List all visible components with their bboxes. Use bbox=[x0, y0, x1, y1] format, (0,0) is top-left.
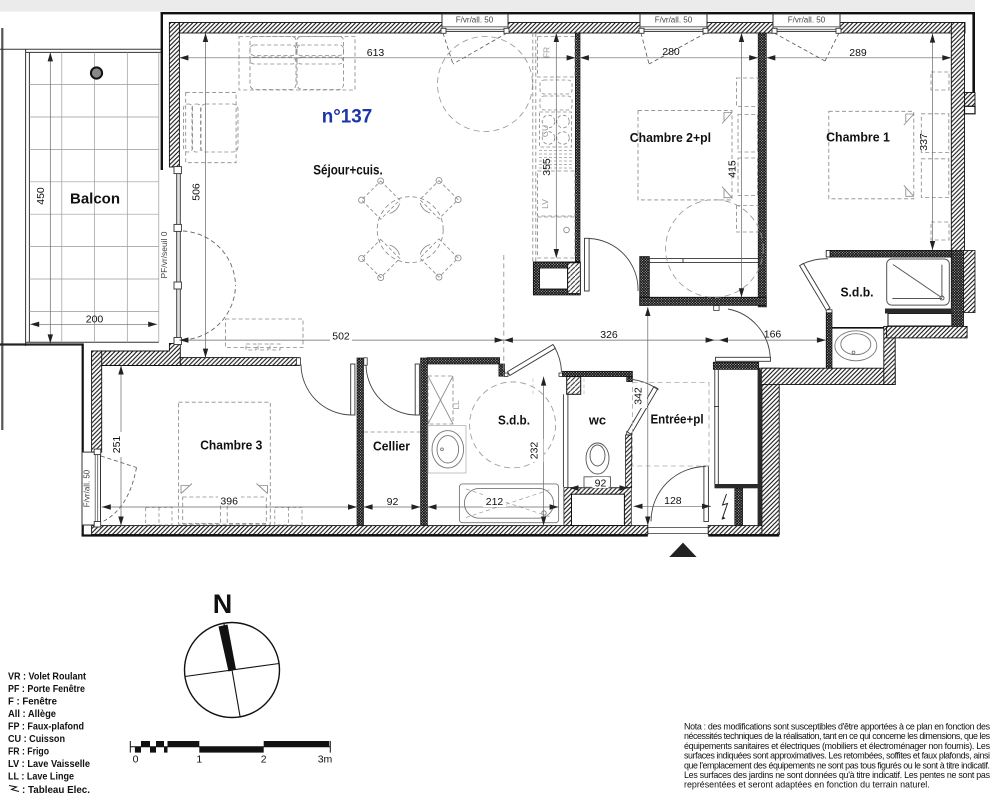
svg-text:LL : Lave Linge: LL : Lave Linge bbox=[8, 772, 74, 783]
svg-text:Cellier: Cellier bbox=[373, 438, 410, 453]
svg-text:FP : Faux-plafond: FP : Faux-plafond bbox=[8, 722, 84, 733]
svg-text:surfaces indiquées sont approx: surfaces indiquées sont approximatives. … bbox=[684, 751, 990, 761]
svg-text:Chambre 1: Chambre 1 bbox=[826, 130, 890, 145]
svg-text:128: 128 bbox=[664, 495, 682, 507]
svg-text:FR: FR bbox=[542, 47, 552, 58]
svg-text:415: 415 bbox=[727, 160, 739, 178]
svg-text:613: 613 bbox=[367, 47, 385, 59]
svg-text:PF : Porte Fenêtre: PF : Porte Fenêtre bbox=[8, 684, 85, 695]
svg-text:Chambre 3: Chambre 3 bbox=[200, 437, 262, 452]
svg-text:F : Fenêtre: F : Fenêtre bbox=[8, 697, 57, 708]
svg-text:506: 506 bbox=[191, 183, 203, 201]
svg-text:équipements sanitaires et élec: équipements sanitaires et électriques (m… bbox=[684, 741, 991, 751]
svg-text:que l'emplacement des équipeme: que l'emplacement des équipements ne son… bbox=[684, 760, 990, 770]
svg-text:F/vr/all. 50: F/vr/all. 50 bbox=[788, 15, 826, 24]
svg-text:F/vr/all. 50: F/vr/all. 50 bbox=[655, 15, 693, 24]
svg-text:CU : Cuisson: CU : Cuisson bbox=[8, 734, 65, 745]
svg-text:LV: LV bbox=[540, 199, 550, 209]
svg-text:Balcon: Balcon bbox=[70, 190, 120, 207]
svg-text:166: 166 bbox=[764, 329, 782, 341]
svg-text:N: N bbox=[213, 589, 233, 619]
svg-text:337: 337 bbox=[918, 133, 930, 151]
svg-text:Nota : des modifications sont: Nota : des modifications sont susceptibl… bbox=[684, 722, 991, 732]
svg-text:355: 355 bbox=[541, 158, 553, 176]
svg-text:Les surfaces des jardins ne so: Les surfaces des jardins ne sont données… bbox=[684, 770, 991, 780]
svg-text:CU: CU bbox=[540, 125, 550, 137]
svg-text:F/vr/all. 50: F/vr/all. 50 bbox=[83, 469, 92, 507]
svg-text:326: 326 bbox=[600, 329, 618, 341]
svg-text:200: 200 bbox=[86, 314, 104, 326]
svg-text:251: 251 bbox=[111, 436, 123, 454]
svg-text:S.d.b.: S.d.b. bbox=[498, 413, 530, 428]
svg-text:Entrée+pl: Entrée+pl bbox=[650, 412, 703, 427]
svg-text:nécessités techniques de la ré: nécessités techniques de la réalisation,… bbox=[684, 731, 991, 741]
svg-text:F/vr/all. 50: F/vr/all. 50 bbox=[456, 15, 494, 24]
svg-text:VR : Volet Roulant: VR : Volet Roulant bbox=[8, 672, 87, 683]
svg-text:S.d.b.: S.d.b. bbox=[840, 285, 873, 300]
svg-text:LV : Lave Vaisselle: LV : Lave Vaisselle bbox=[8, 759, 90, 770]
svg-text:396: 396 bbox=[220, 496, 238, 508]
svg-text:1: 1 bbox=[196, 754, 202, 766]
svg-text:280: 280 bbox=[662, 46, 680, 58]
svg-text:92: 92 bbox=[595, 478, 607, 490]
svg-text:502: 502 bbox=[332, 331, 350, 343]
svg-text:0: 0 bbox=[133, 754, 139, 766]
svg-text:212: 212 bbox=[486, 496, 504, 508]
svg-text:2: 2 bbox=[261, 754, 267, 766]
svg-text:450: 450 bbox=[35, 187, 47, 205]
svg-text:LL: LL bbox=[451, 400, 461, 410]
svg-text:FR : Frigo: FR : Frigo bbox=[8, 747, 49, 758]
svg-text:PF/vr/seuil 0: PF/vr/seuil 0 bbox=[160, 231, 169, 279]
svg-text:: Tableau Elec.: : Tableau Elec. bbox=[22, 785, 90, 796]
svg-text:All : Allège: All : Allège bbox=[8, 709, 56, 720]
svg-text:wc: wc bbox=[588, 412, 606, 427]
svg-text:289: 289 bbox=[849, 47, 867, 59]
svg-text:Séjour+cuis.: Séjour+cuis. bbox=[313, 163, 383, 178]
svg-text:342: 342 bbox=[633, 387, 645, 405]
svg-text:232: 232 bbox=[529, 442, 541, 460]
svg-text:3m: 3m bbox=[318, 754, 333, 766]
svg-text:92: 92 bbox=[387, 496, 399, 508]
svg-text:représentées et seront adaptée: représentées et seront adaptées en fonct… bbox=[684, 780, 930, 790]
svg-text:Chambre 2+pl: Chambre 2+pl bbox=[630, 130, 711, 145]
svg-text:n°137: n°137 bbox=[322, 107, 373, 128]
